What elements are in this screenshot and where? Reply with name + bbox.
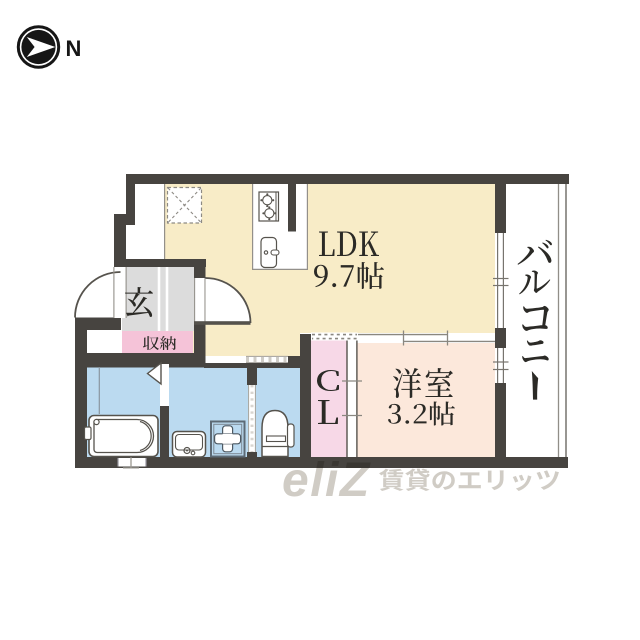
svg-text:N: N xyxy=(66,36,82,61)
svg-text:eliZ: eliZ xyxy=(282,454,371,507)
